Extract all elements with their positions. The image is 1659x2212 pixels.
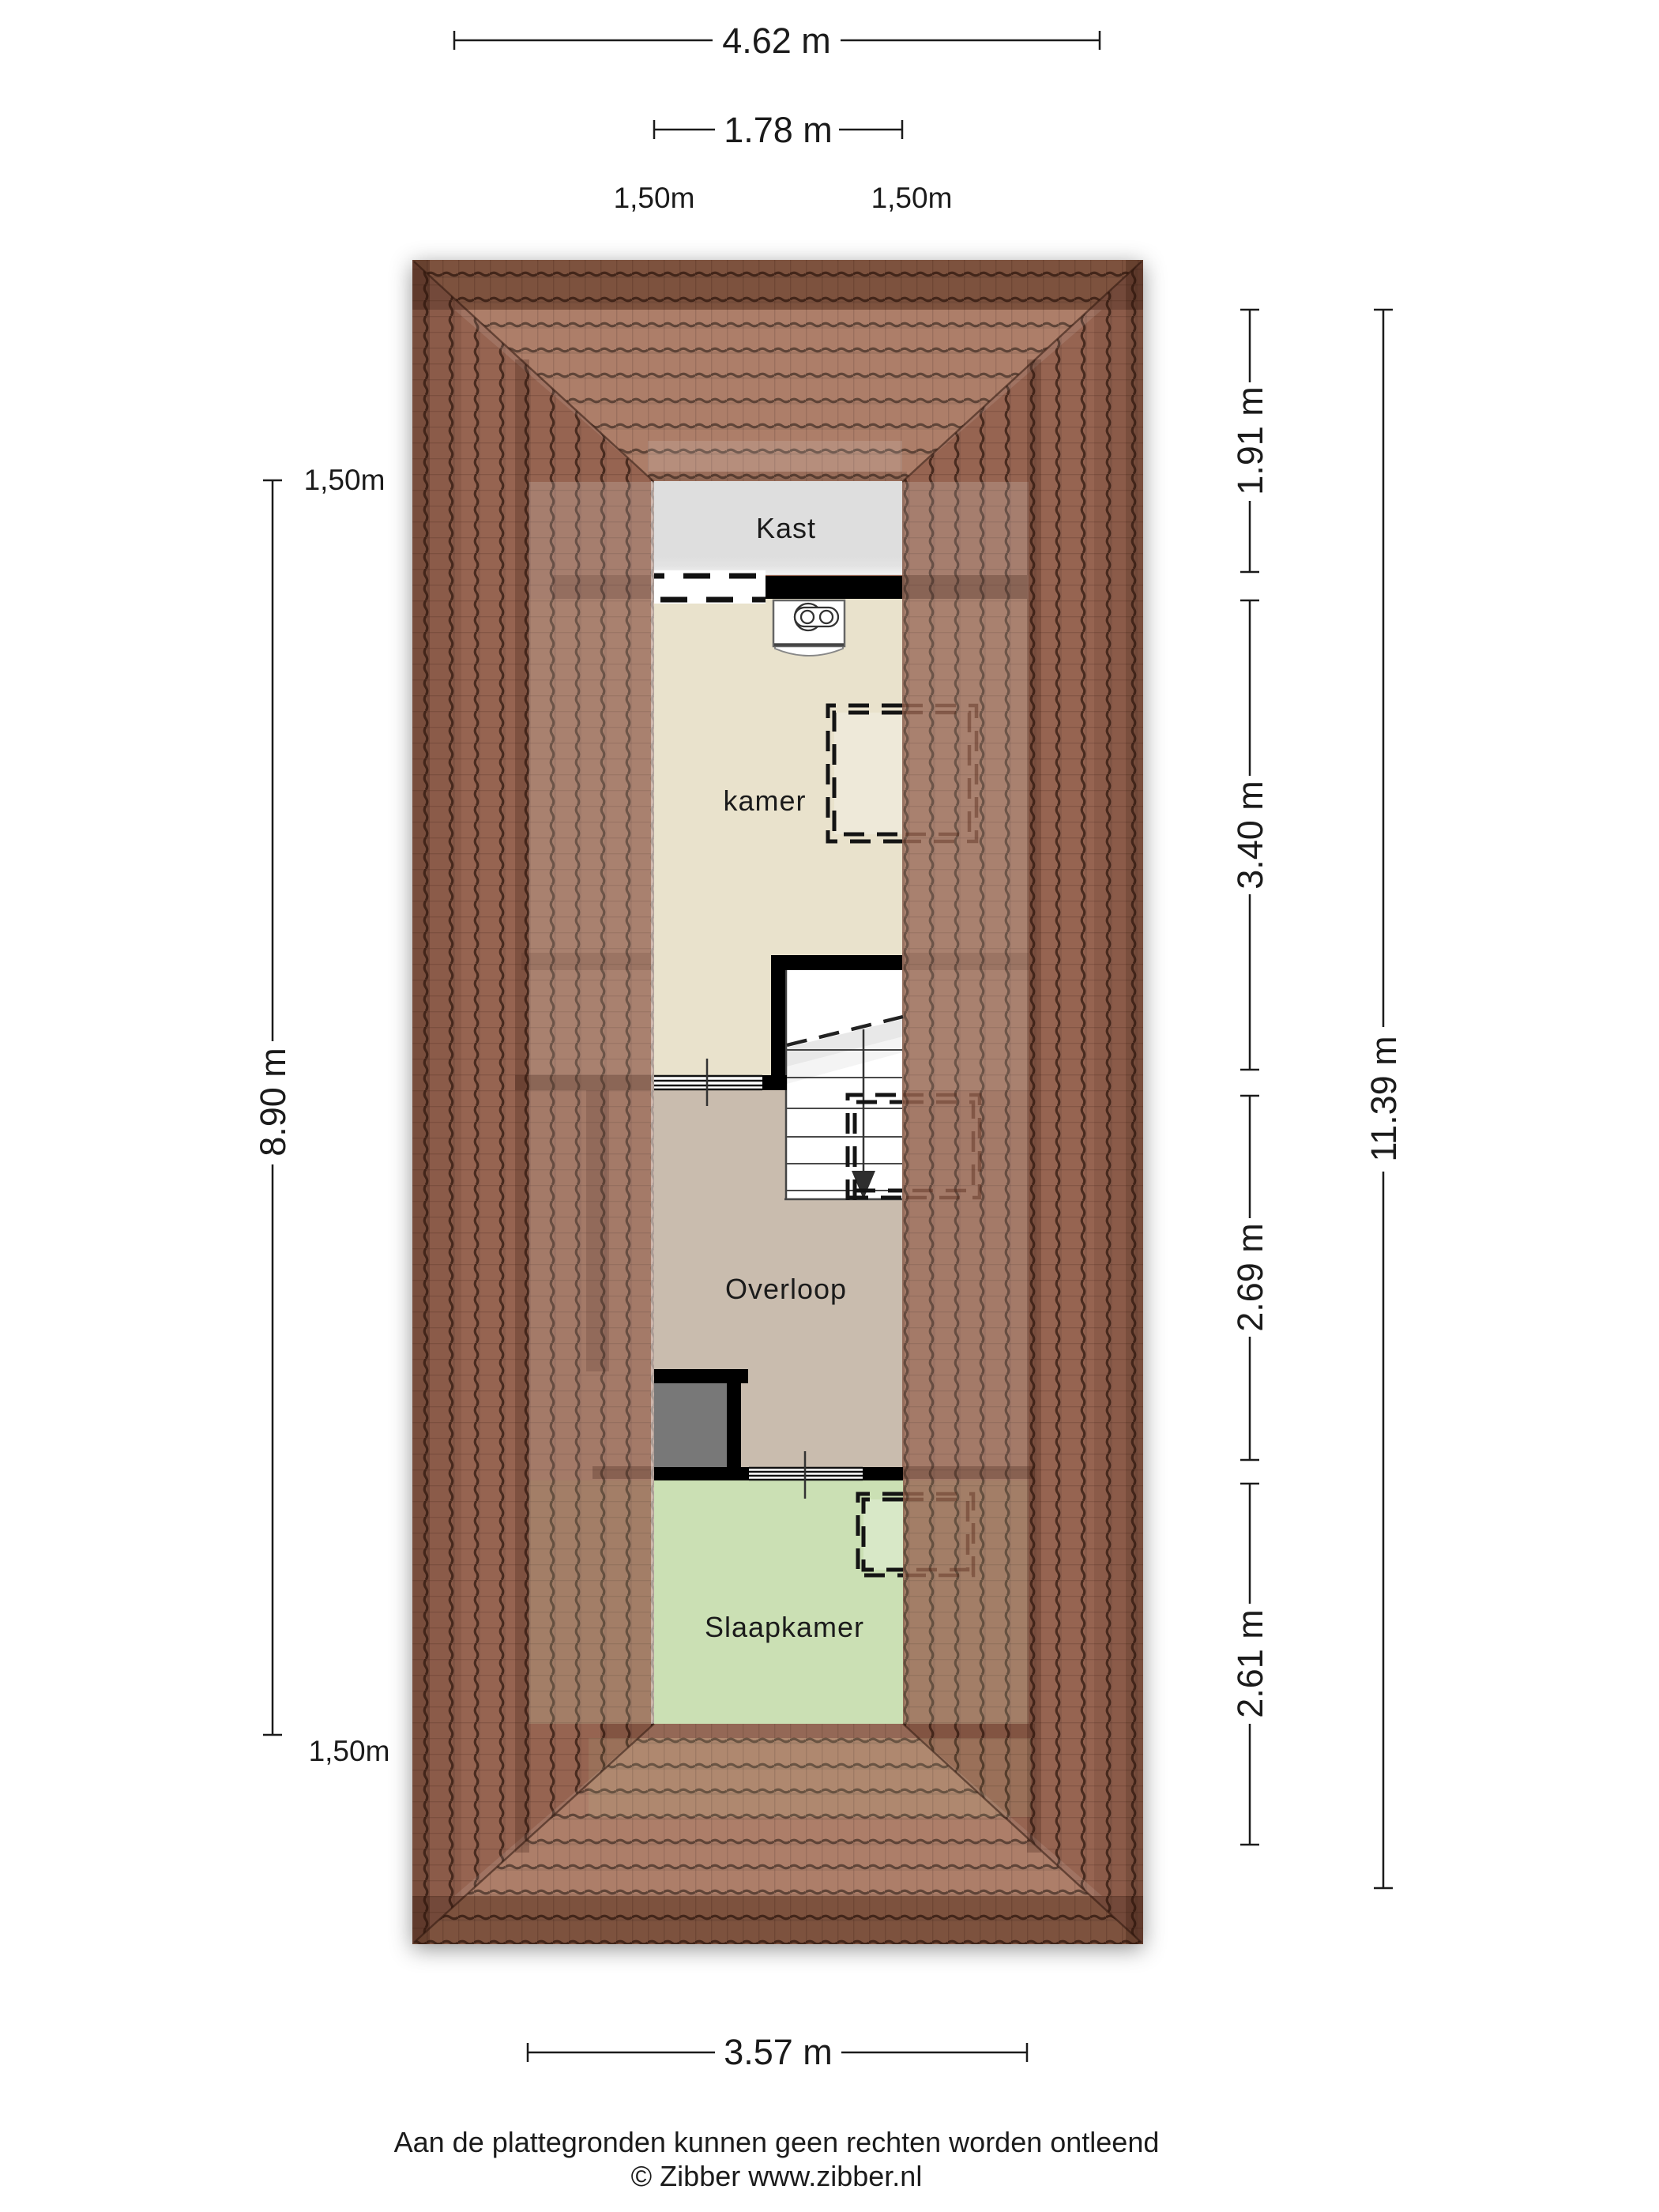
svg-text:Aan de plattegronden kunnen ge: Aan de plattegronden kunnen geen rechten… bbox=[394, 2126, 1160, 2158]
svg-text:1,50m: 1,50m bbox=[871, 182, 953, 214]
svg-text:2.61 m: 2.61 m bbox=[1230, 1609, 1270, 1718]
svg-text:1,50m: 1,50m bbox=[304, 464, 386, 496]
svg-text:Overloop: Overloop bbox=[725, 1273, 847, 1305]
svg-text:1.78 m: 1.78 m bbox=[724, 110, 833, 150]
svg-text:4.62 m: 4.62 m bbox=[722, 21, 831, 61]
svg-text:2.69 m: 2.69 m bbox=[1230, 1223, 1270, 1332]
svg-text:11.39 m: 11.39 m bbox=[1364, 1036, 1404, 1161]
svg-text:kamer: kamer bbox=[723, 784, 806, 817]
svg-text:Kast: Kast bbox=[756, 512, 816, 544]
svg-text:1,50m: 1,50m bbox=[614, 182, 695, 214]
svg-text:Slaapkamer: Slaapkamer bbox=[705, 1611, 864, 1643]
svg-text:3.57 m: 3.57 m bbox=[724, 2032, 833, 2072]
svg-text:8.90 m: 8.90 m bbox=[253, 1048, 293, 1157]
svg-text:3.40 m: 3.40 m bbox=[1230, 781, 1270, 890]
svg-text:© Zibber www.zibber.nl: © Zibber www.zibber.nl bbox=[631, 2160, 923, 2192]
svg-text:1.91 m: 1.91 m bbox=[1230, 386, 1270, 495]
svg-text:1,50m: 1,50m bbox=[309, 1735, 390, 1767]
